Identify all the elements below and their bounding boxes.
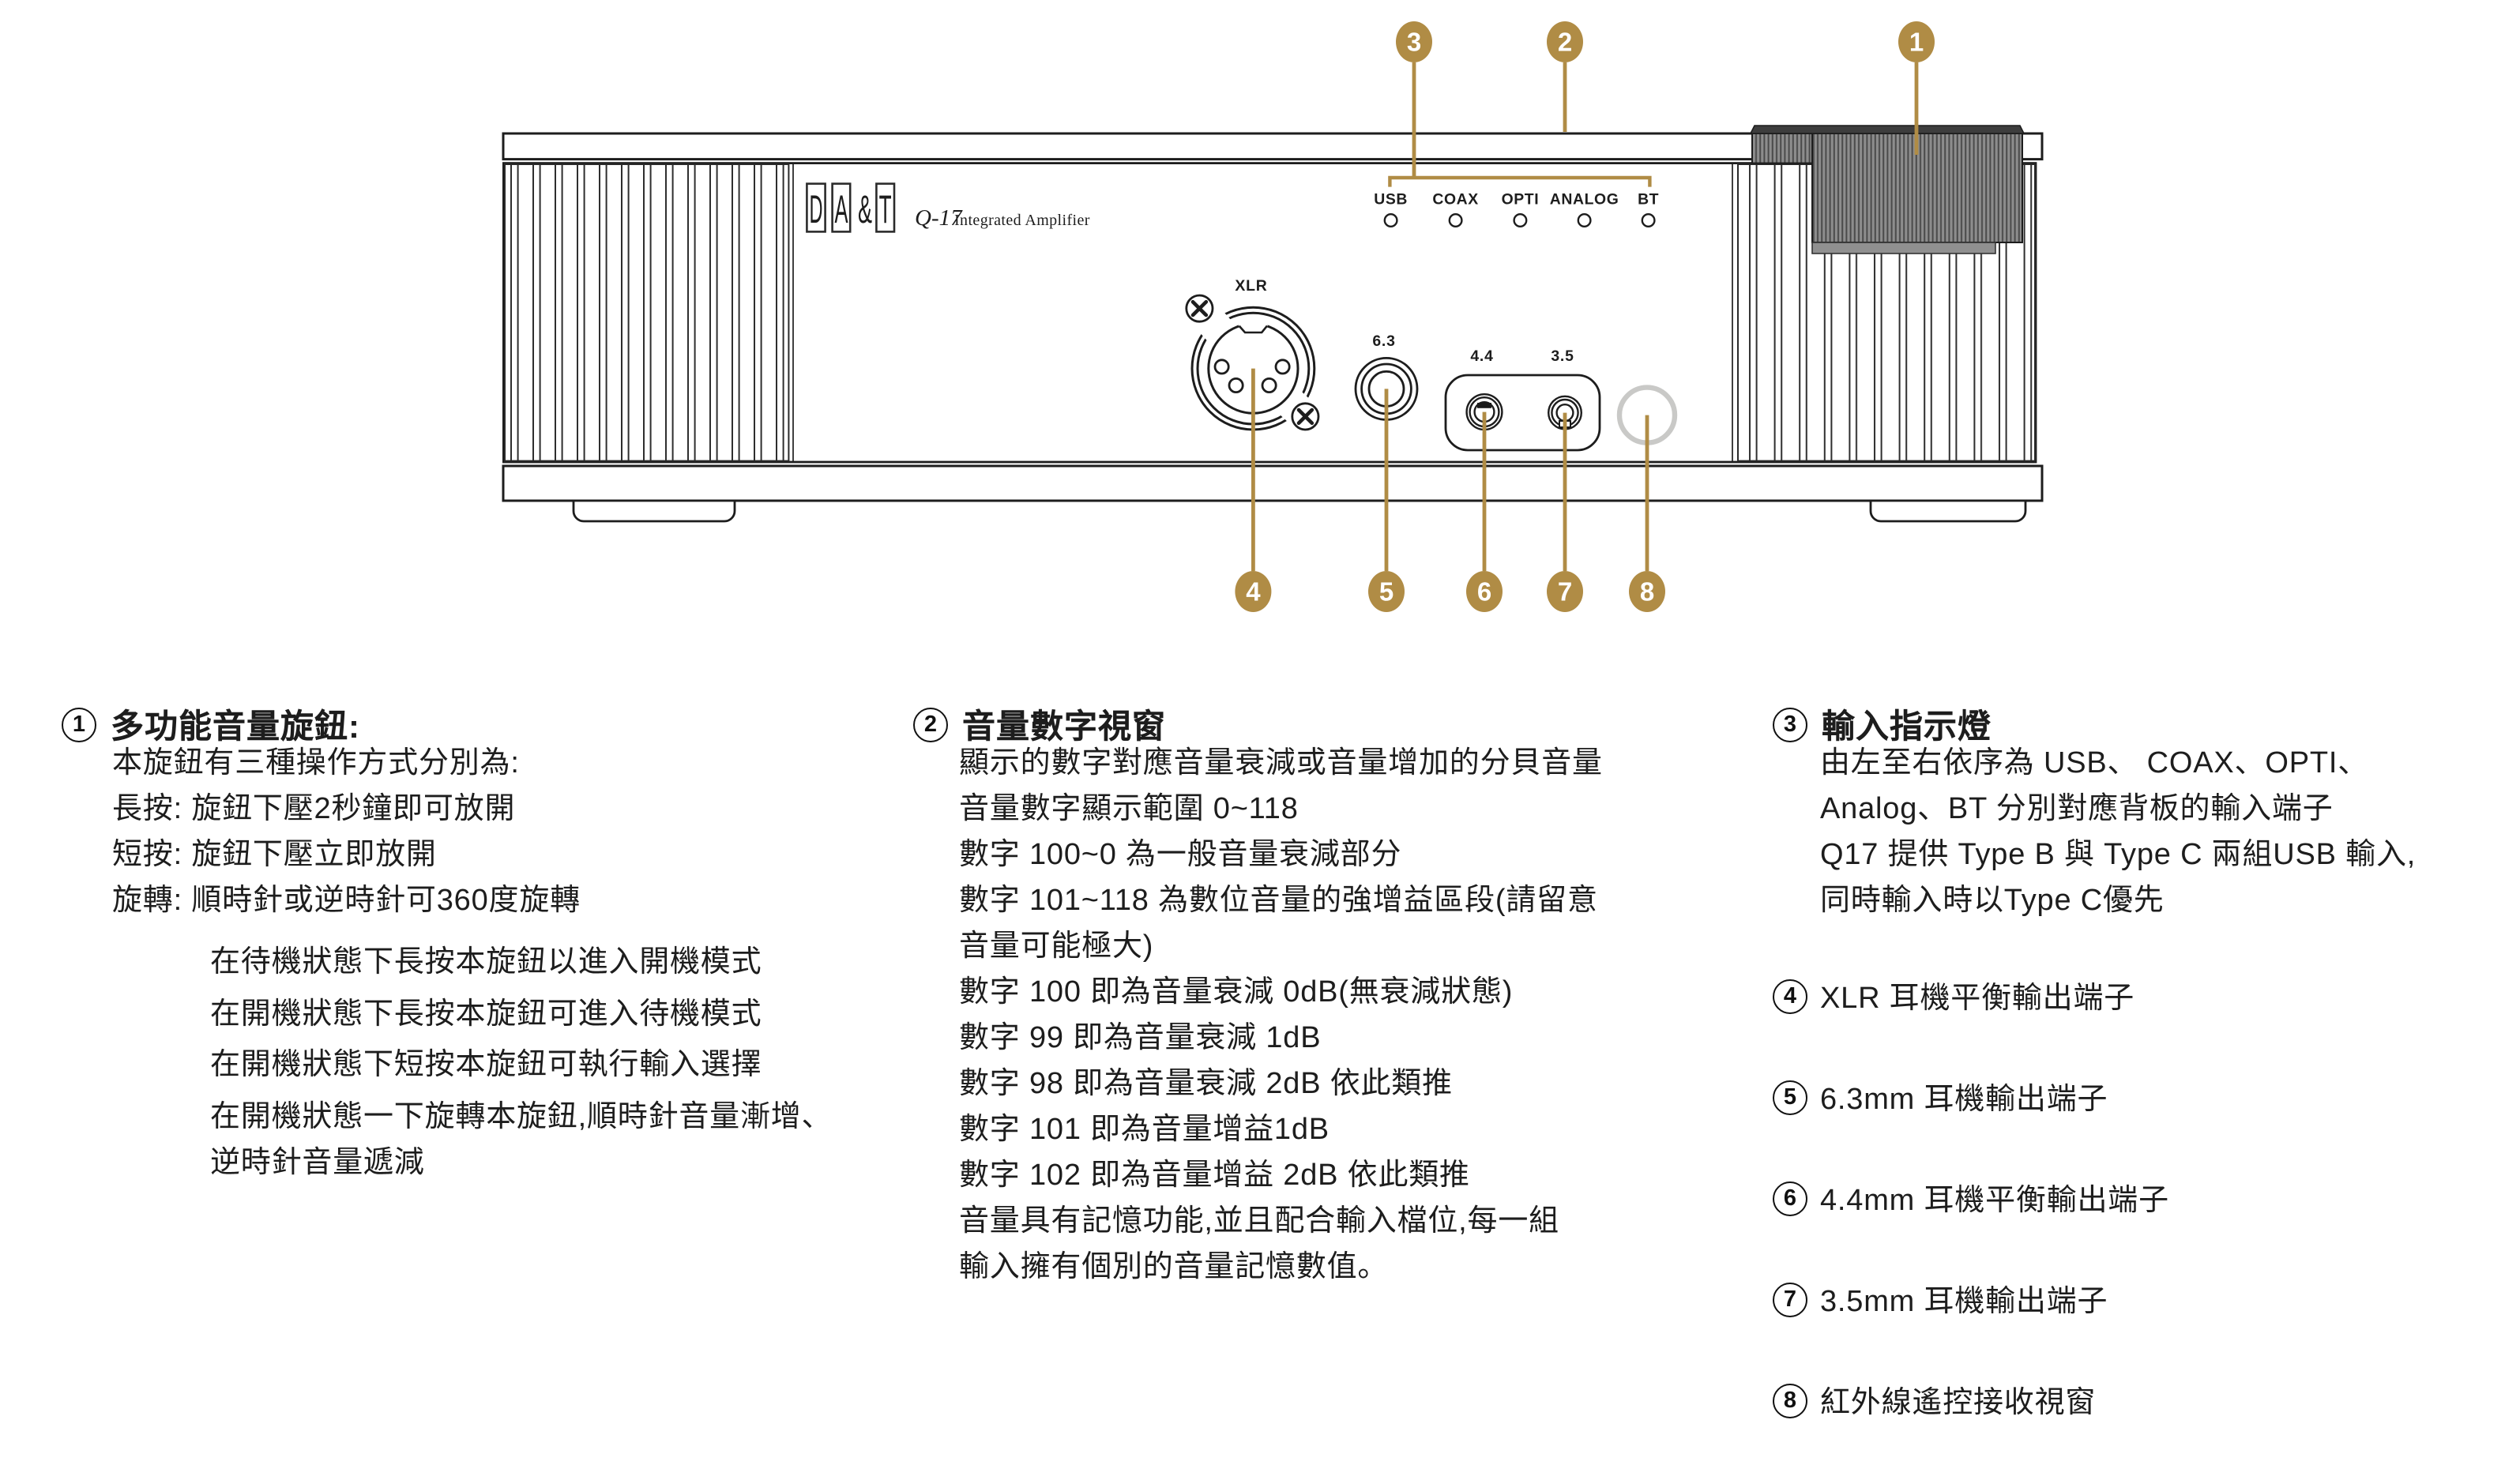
callout-num-4: 4	[1246, 577, 1261, 607]
text-line: 數字 99 即為音量衰減 1dB	[959, 1016, 1603, 1061]
item-text: 3.5mm 耳機輸出端子	[1820, 1278, 2108, 1320]
text-line: 音量數字顯示範圍 0~118	[959, 787, 1603, 832]
brand-letter-d: D	[810, 187, 823, 231]
list-item: 4 XLR 耳機平衡輸出端子	[1773, 975, 2169, 1017]
brand-letter-a: A	[835, 187, 848, 231]
item-text: 6.3mm 耳機輸出端子	[1820, 1076, 2108, 1118]
text-line: 逆時針音量遞減	[210, 1140, 832, 1185]
jack-3-5-label: 3.5	[1551, 347, 1574, 365]
list-item: 8 紅外線遙控接收視窗	[1773, 1379, 2169, 1422]
callout-num-5: 5	[1379, 577, 1394, 607]
led-bt	[1642, 214, 1655, 227]
led-label-opti: OPTI	[1502, 190, 1540, 208]
text-line: 在開機狀態一下旋轉本旋鈕,順時針音量漸增、	[210, 1094, 832, 1140]
left-heatsink-fins	[505, 164, 788, 461]
callout-num-6: 6	[1477, 577, 1491, 607]
led-label-usb: USB	[1374, 190, 1408, 208]
callout-num-7: 7	[1558, 577, 1572, 607]
item-number-4: 4	[1773, 979, 1807, 1013]
callout-num-3: 3	[1407, 28, 1421, 57]
list-item: 5 6.3mm 耳機輸出端子	[1773, 1076, 2169, 1118]
section-3-body: 由左至右依序為 USB、 COAX、OPTI、 Analog、BT 分別對應背板…	[1820, 741, 2416, 924]
callout-num-2: 2	[1558, 28, 1572, 57]
text-line: 由左至右依序為 USB、 COAX、OPTI、	[1820, 741, 2416, 787]
list-item: 6 4.4mm 耳機平衡輸出端子	[1773, 1177, 2169, 1219]
jack-4-4-label: 4.4	[1470, 347, 1493, 365]
item-number-7: 7	[1773, 1282, 1807, 1317]
led-coax	[1450, 214, 1462, 227]
section-1-number: 1	[62, 708, 96, 742]
led-label-analog: ANALOG	[1550, 190, 1619, 208]
led-analog	[1578, 214, 1591, 227]
section-3-number: 3	[1773, 708, 1807, 742]
model-suffix: Integrated Amplifier	[954, 212, 1090, 229]
item-text: XLR 耳機平衡輸出端子	[1820, 975, 2134, 1017]
text-line: 音量可能極大)	[959, 924, 1603, 970]
xlr-pin	[1215, 360, 1228, 374]
section-3-items: 4 XLR 耳機平衡輸出端子 5 6.3mm 耳機輸出端子 6 4.4mm 耳機…	[1773, 975, 2169, 1480]
text-line: 短按: 旋鈕下壓立即放開	[112, 832, 581, 878]
xlr-pin	[1262, 378, 1276, 392]
brand-letter-t: T	[879, 187, 892, 231]
text-line: 在開機狀態下短按本旋鈕可執行輸入選擇	[210, 1042, 832, 1088]
text-line: 數字 101~118 為數位音量的強增益區段(請留意	[959, 878, 1603, 924]
text-line: 數字 102 即為音量增益 2dB 依此類推	[959, 1153, 1603, 1199]
text-line: 數字 100 即為音量衰減 0dB(無衰減狀態)	[959, 970, 1603, 1016]
led-opti	[1514, 214, 1527, 227]
xlr-keyway-notch	[1239, 326, 1267, 332]
section-1-notes: 在待機狀態下長按本旋鈕以進入開機模式 在開機狀態下長按本旋鈕可進入待機模式 在開…	[210, 940, 832, 1185]
manual-page: D A & T Q-17 Integrated Amplifier USB CO…	[0, 0, 2520, 1439]
text-line: Analog、BT 分別對應背板的輸入端子	[1820, 787, 2416, 832]
text-line: Q17 提供 Type B 與 Type C 兩組USB 輸入,	[1820, 832, 2416, 878]
callout-num-8: 8	[1640, 577, 1654, 607]
led-usb	[1385, 214, 1397, 227]
text-line: 輸入擁有個別的音量記憶數值。	[959, 1245, 1603, 1290]
foot-right	[1871, 501, 2025, 521]
text-line: 同時輸入時以Type C優先	[1820, 878, 2416, 924]
text-line: 在待機狀態下長按本旋鈕以進入開機模式	[210, 940, 832, 986]
xlr-pin	[1229, 378, 1243, 392]
chassis-bottom-band	[503, 466, 2042, 501]
jack-6-3-label: 6.3	[1372, 332, 1395, 350]
knob-skirt	[1812, 242, 1995, 254]
jack-4-4-marker	[1477, 403, 1491, 408]
text-line: 長按: 旋鈕下壓2秒鐘即可放開	[112, 787, 581, 832]
screw-icon	[1187, 295, 1213, 321]
xlr-label: XLR	[1235, 277, 1267, 295]
text-line: 本旋鈕有三種操作方式分別為:	[112, 741, 581, 787]
screw-icon	[1292, 404, 1318, 430]
xlr-pin	[1276, 360, 1289, 374]
knob-top-cap	[1751, 126, 2024, 133]
text-line: 數字 98 即為音量衰減 2dB 依此類推	[959, 1061, 1603, 1107]
item-number-6: 6	[1773, 1181, 1807, 1215]
front-panel-diagram: D A & T Q-17 Integrated Amplifier USB CO…	[0, 0, 2520, 663]
item-text: 紅外線遙控接收視窗	[1820, 1379, 2096, 1422]
item-number-5: 5	[1773, 1080, 1807, 1114]
text-line: 數字 101 即為音量增益1dB	[959, 1107, 1603, 1153]
brand-letter-amp: &	[858, 187, 872, 231]
list-item: 7 3.5mm 耳機輸出端子	[1773, 1278, 2169, 1320]
foot-left	[574, 501, 735, 521]
item-number-8: 8	[1773, 1383, 1807, 1418]
text-line: 顯示的數字對應音量衰減或音量增加的分貝音量	[959, 741, 1603, 787]
callout-num-1: 1	[1909, 28, 1924, 57]
led-label-coax: COAX	[1432, 190, 1478, 208]
text-line: 數字 100~0 為一般音量衰減部分	[959, 832, 1603, 878]
item-text: 4.4mm 耳機平衡輸出端子	[1820, 1177, 2169, 1219]
text-line: 旋轉: 順時針或逆時針可360度旋轉	[112, 878, 581, 924]
section-1-body: 本旋鈕有三種操作方式分別為: 長按: 旋鈕下壓2秒鐘即可放開 短按: 旋鈕下壓立…	[112, 741, 581, 924]
section-2-body: 顯示的數字對應音量衰減或音量增加的分貝音量 音量數字顯示範圍 0~118 數字 …	[959, 741, 1603, 1290]
section-2-number: 2	[913, 708, 948, 742]
led-label-bt: BT	[1638, 190, 1659, 208]
text-line: 在開機狀態下長按本旋鈕可進入待機模式	[210, 991, 832, 1037]
text-line: 音量具有記憶功能,並且配合輸入檔位,每一組	[959, 1199, 1603, 1245]
